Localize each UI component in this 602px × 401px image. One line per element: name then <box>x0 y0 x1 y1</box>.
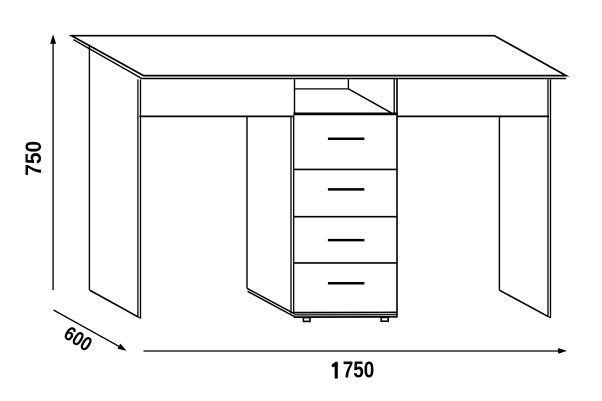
svg-text:750: 750 <box>21 141 46 176</box>
svg-text:750: 750 <box>343 357 375 383</box>
